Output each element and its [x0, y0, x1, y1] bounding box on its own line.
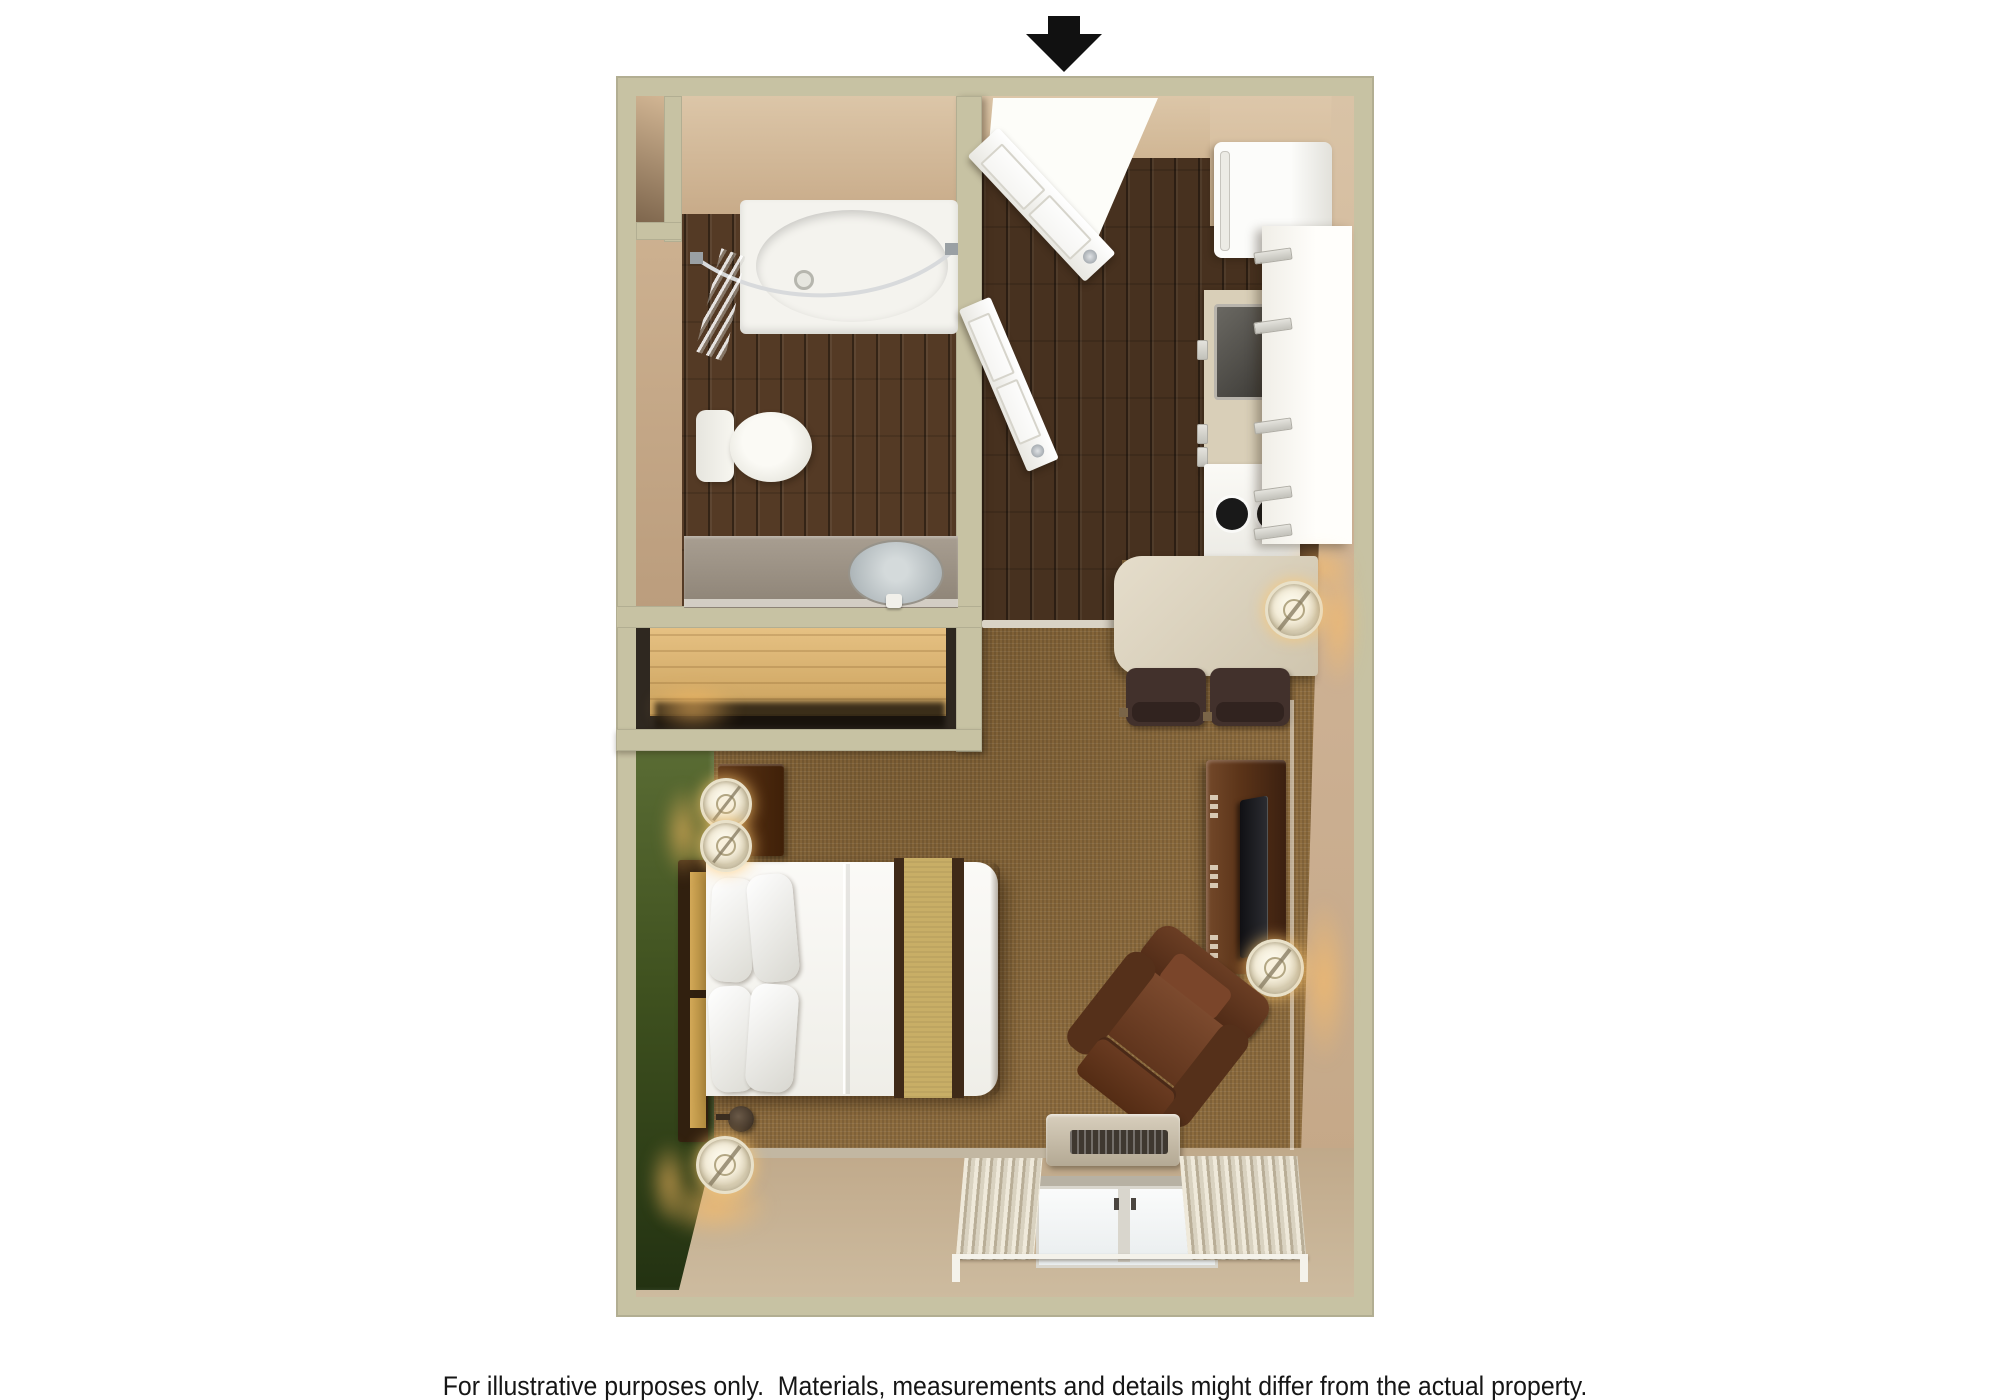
- closet-lamp-glow: [648, 684, 738, 732]
- bed-runner-trim: [894, 858, 904, 1098]
- headboard-panel: [690, 872, 706, 990]
- curtain-rod-bracket: [952, 1254, 960, 1282]
- entry-threshold: [982, 620, 1122, 628]
- curtain-left: [956, 1158, 1043, 1260]
- counter-drawer-handle: [1197, 340, 1208, 360]
- bed-foot-edge: [990, 862, 1000, 1096]
- floor-lamp: [696, 1136, 754, 1194]
- arrow-down-icon-head: [1026, 34, 1102, 72]
- chair-backrest: [1132, 702, 1200, 722]
- bathroom-top-wall-face: [680, 96, 958, 214]
- chair-leg: [1203, 712, 1212, 721]
- sheet-fold-shadow: [846, 864, 850, 1094]
- dresser-drawer-handles: [1210, 932, 1218, 958]
- bed-pillow: [745, 872, 800, 984]
- chair-leg: [1119, 708, 1128, 717]
- dresser-drawer-handles: [1210, 792, 1218, 818]
- table-lamp: [1265, 581, 1323, 639]
- nightstand-lamp: [700, 820, 752, 872]
- refrigerator-handle: [1220, 151, 1230, 251]
- bathroom-bottom-wall: [616, 606, 982, 628]
- bed-runner-trim: [952, 858, 964, 1098]
- tv: [1240, 796, 1268, 959]
- dresser-lamp: [1246, 939, 1304, 997]
- curtain-right: [1179, 1156, 1306, 1260]
- closet-bottom-wall: [616, 729, 982, 751]
- bathroom-entry-partition-wall: [956, 96, 982, 752]
- dining-chair: [1126, 668, 1206, 726]
- niche-right-wall: [664, 96, 682, 242]
- headboard-panel: [690, 998, 706, 1128]
- table-lamp-wall-glow: [1316, 556, 1360, 690]
- carpet-baseboard: [714, 1148, 1050, 1158]
- toilet-bowl: [730, 412, 812, 482]
- window-latch: [1114, 1198, 1119, 1210]
- counter-drawer-handle: [1197, 424, 1208, 444]
- window-latch: [1131, 1198, 1136, 1210]
- ac-heater-grille: [1070, 1130, 1168, 1154]
- sink-faucet: [886, 594, 902, 608]
- niche-bottom-wall: [636, 222, 682, 240]
- dining-chair: [1210, 668, 1290, 726]
- stove-burner: [1216, 498, 1248, 530]
- caption: For illustrative purposes only. Material…: [0, 1340, 2000, 1400]
- wall-sconce: [728, 1106, 754, 1132]
- curtain-rod-bracket: [1300, 1254, 1308, 1282]
- kitchen-sink: [1214, 304, 1268, 400]
- niche-interior: [636, 96, 666, 224]
- bathroom-door-handle: [1029, 442, 1046, 459]
- chair-backrest: [1216, 702, 1284, 722]
- floor-plan-page: For illustrative purposes only. Material…: [0, 0, 2000, 1400]
- entry-door-handle: [1080, 247, 1100, 267]
- bed-runner-gold: [904, 858, 952, 1098]
- sheet-fold-line: [843, 864, 845, 1094]
- window-mullion: [1118, 1186, 1130, 1262]
- floor-lamp-glow: [648, 1140, 690, 1224]
- nightstand-lamp-glow: [662, 784, 704, 880]
- bed-pillow: [744, 982, 799, 1093]
- dresser-lamp-wall-glow: [1298, 896, 1350, 1066]
- curtain-rod: [956, 1254, 1308, 1259]
- living-baseboard: [1290, 700, 1294, 1150]
- caption-text: For illustrative purposes only. Material…: [443, 1371, 1588, 1400]
- wall-sconce-stem: [716, 1114, 730, 1120]
- dresser-drawer-handles: [1210, 862, 1218, 888]
- toilet-tank: [696, 410, 734, 482]
- arrow-down-icon: [1048, 16, 1080, 36]
